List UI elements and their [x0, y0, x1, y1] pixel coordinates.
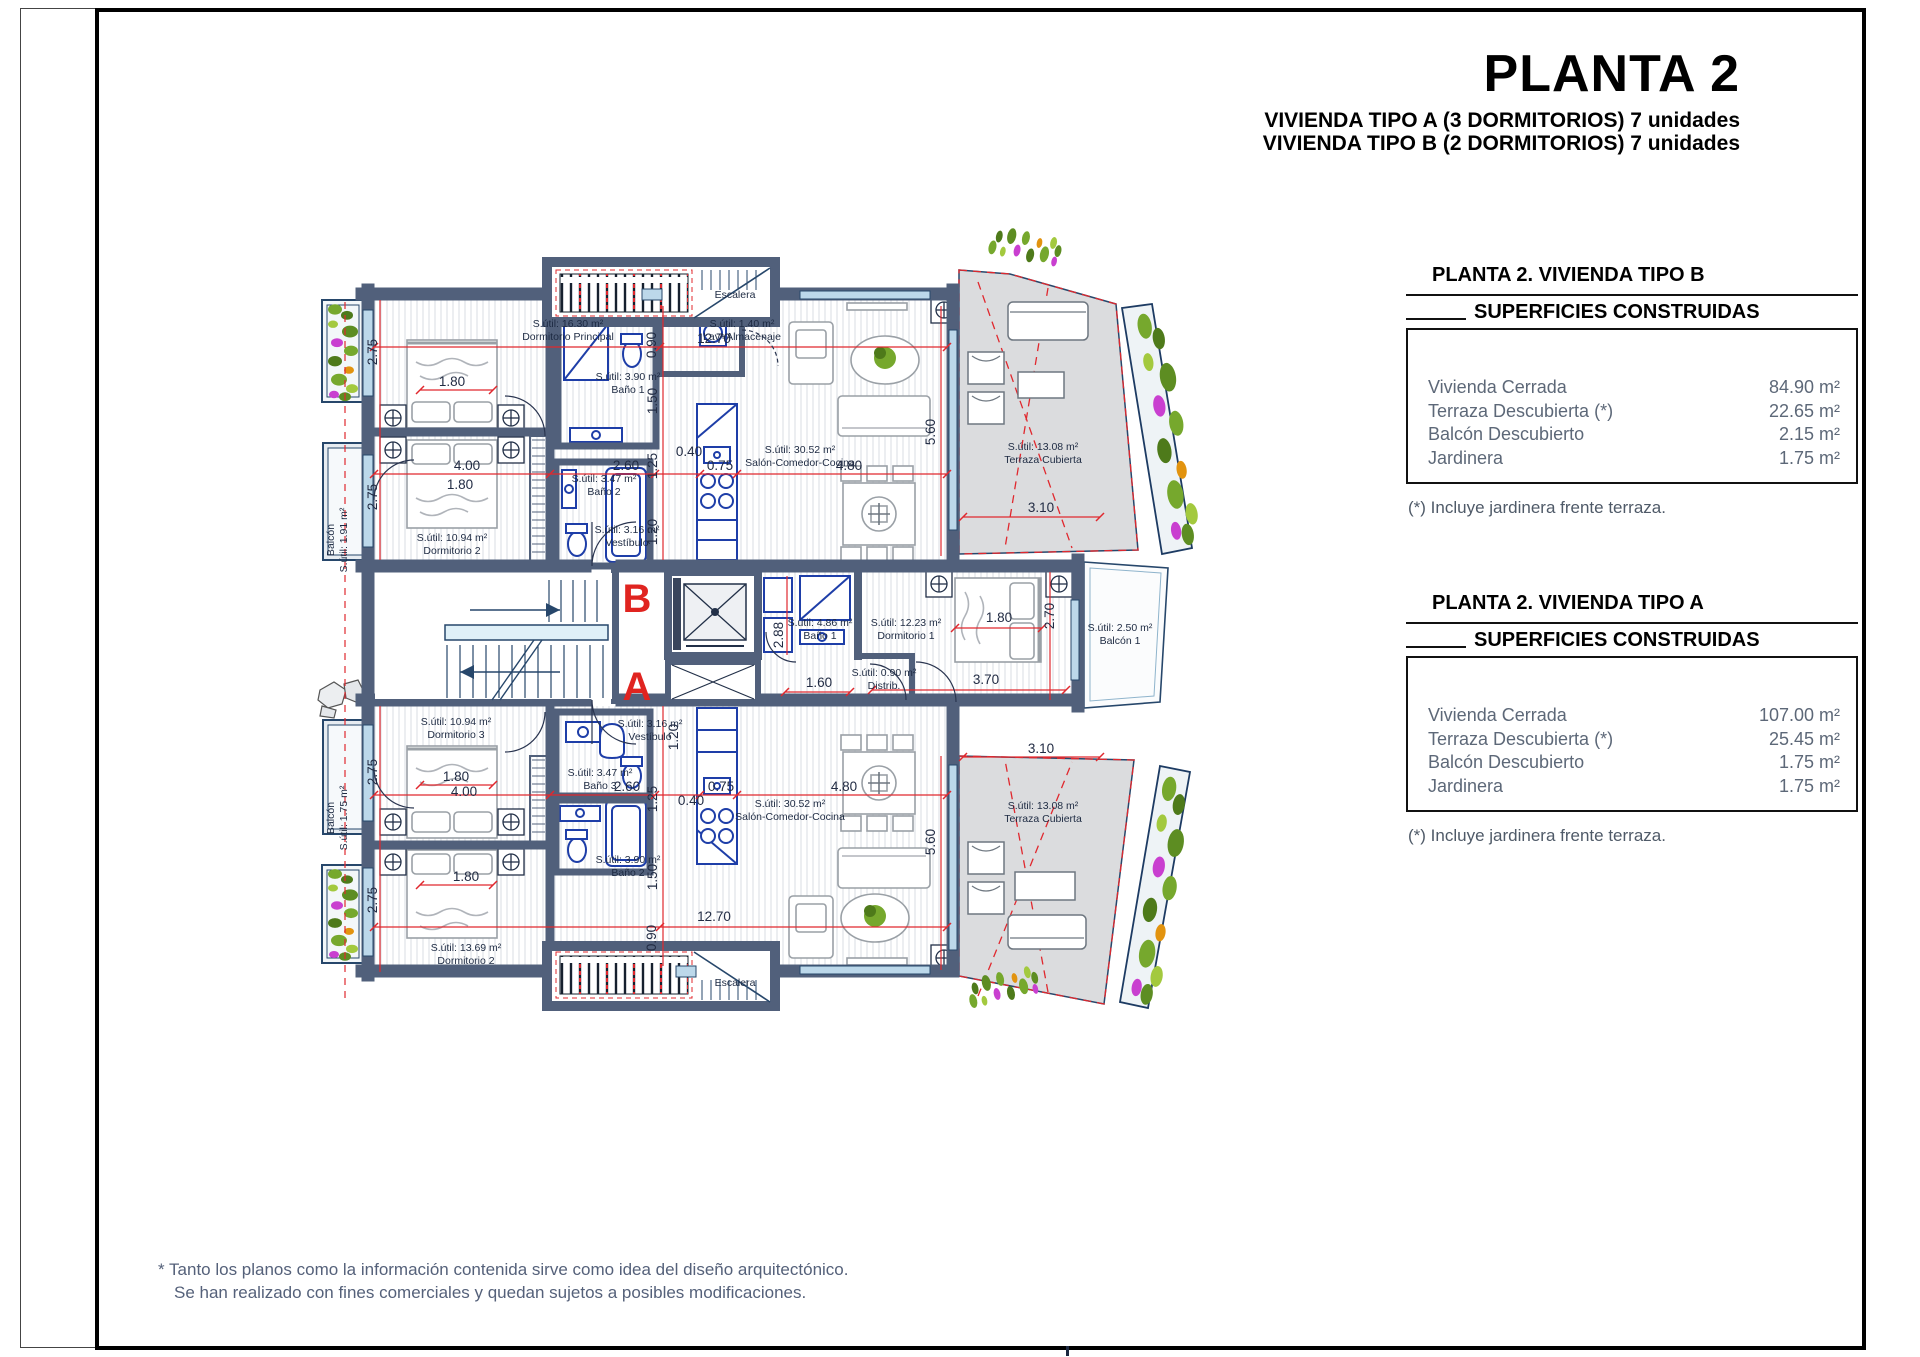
dimension-label: 1.25 — [645, 453, 660, 479]
room-label: Baño 1 — [803, 630, 836, 642]
dimension-label: 1.80 — [453, 869, 479, 884]
room-label: Terraza Cubierta — [1004, 813, 1082, 825]
dimension-label: 1.25 — [645, 786, 660, 812]
dimension-label: 0.90 — [644, 925, 659, 951]
dimension-label: 1.50 — [645, 864, 660, 890]
dimension-label: 0.90 — [644, 332, 659, 358]
dimension-label: 2.75 — [365, 339, 380, 365]
room-label: S.útil: 30.52 m² — [755, 798, 826, 810]
service-shaft — [668, 662, 758, 702]
unit-letter-b: B — [623, 577, 652, 621]
room-label: Salón-Comedor-Cocina — [735, 811, 845, 823]
plant — [874, 347, 886, 359]
room-label: Balcón 1 — [1100, 635, 1141, 647]
dimension-label: 1.80 — [439, 374, 465, 389]
room-label: S.útil: 12.23 m² — [871, 617, 942, 629]
room-label: Vestíbulo — [605, 537, 648, 549]
room-label: Escalera — [715, 977, 756, 989]
dimension-label: 0.75 — [707, 458, 733, 473]
dimension-label: 2.75 — [365, 484, 380, 510]
planter-upper-left — [322, 300, 364, 402]
plant — [864, 905, 876, 917]
room-label: S.útil: 3.47 m² — [572, 473, 637, 485]
dimension-label: 1.80 — [443, 769, 469, 784]
dimension-label: 4.80 — [836, 458, 862, 473]
stairwell — [375, 573, 612, 700]
planter-lower-left — [322, 865, 364, 963]
dimension-label: 1.80 — [447, 477, 473, 492]
room-label: S.útil: 13.08 m² — [1008, 441, 1079, 453]
dimension-label: 5.60 — [923, 829, 938, 855]
dimension-label: 2.60 — [613, 458, 639, 473]
dimension-label: 4.80 — [831, 779, 857, 794]
room-label: Dormitorio Principal — [522, 331, 614, 343]
dimension-label: 1.80 — [986, 610, 1012, 625]
dimension-label: 2.60 — [614, 779, 640, 794]
room-label: Dormitorio 1 — [877, 630, 934, 642]
room-label: S.útil: 3.47 m² — [568, 767, 633, 779]
dimension-label: 12.70 — [697, 909, 731, 924]
room-label: Baño 2 — [611, 867, 644, 879]
room-label: Dormitorio 3 — [427, 729, 484, 741]
room-label: S.útil: 1.40 m² — [710, 318, 775, 330]
room-label: Terraza Cubierta — [1004, 454, 1082, 466]
terrace-corner-plants-b — [987, 224, 1064, 268]
room-label: S.útil: 10.94 m² — [421, 716, 492, 728]
dimension-label: 0.75 — [708, 779, 734, 794]
dimension-label: 1.20 — [645, 519, 660, 545]
stair-block-bottom — [547, 946, 775, 1006]
room-label: Balcón — [325, 524, 337, 556]
room-label: S.útil: 4.86 m² — [788, 617, 853, 629]
room-label: S.útil: 30.52 m² — [765, 444, 836, 456]
room-label: S.útil: 3.90 m² — [596, 371, 661, 383]
dimension-label: 1.20 — [666, 724, 681, 750]
dimension-label: 3.10 — [1028, 500, 1054, 515]
room-label: Dormitorio 2 — [423, 545, 480, 557]
dimension-label: 0.40 — [676, 444, 702, 459]
dimension-label: 2.75 — [365, 887, 380, 913]
unit-letter-a: A — [623, 665, 652, 709]
dimension-label: 3.70 — [973, 672, 999, 687]
room-label: S.útil: 2.50 m² — [1088, 622, 1153, 634]
room-label: Escalera — [715, 289, 756, 301]
dimension-label: 1.50 — [645, 388, 660, 414]
dimension-label: 2.88 — [771, 622, 786, 648]
room-label: S.útil: 16.30 m² — [533, 318, 604, 330]
dimension-label: 4.00 — [454, 458, 480, 473]
floor-plan: S.útil: 16.30 m²Dormitorio PrincipalS.út… — [0, 0, 1920, 1357]
terrace-a — [959, 756, 1134, 1004]
room-label: Baño 2 — [587, 486, 620, 498]
dimension-label: 1.60 — [806, 675, 832, 690]
room-label: Distrib. — [868, 680, 901, 692]
room-label: Balcón — [325, 802, 337, 834]
room-label: S.útil: 10.94 m² — [417, 532, 488, 544]
room-label: S.útil: 13.69 m² — [431, 942, 502, 954]
room-label: S.útil: 1.75 m² — [338, 785, 350, 850]
dimension-label: 12.70 — [697, 331, 731, 346]
dimension-label: 2.70 — [1042, 603, 1057, 629]
room-label: Baño 3 — [583, 780, 616, 792]
dimension-label: 4.00 — [451, 784, 477, 799]
dimension-label: 5.60 — [923, 419, 938, 445]
room-label: S.útil: 13.08 m² — [1008, 800, 1079, 812]
room-label: Baño 1 — [611, 384, 644, 396]
room-label: S.útil: 1.91 m² — [338, 507, 350, 572]
room-label: S.útil: 0.90 m² — [852, 667, 917, 679]
room-label: Dormitorio 2 — [437, 955, 494, 967]
plan-sheet: PLANTA 2 VIVIENDA TIPO A (3 DORMITORIOS)… — [0, 0, 1920, 1357]
dimension-label: 0.40 — [678, 793, 704, 808]
dimension-label: 2.75 — [365, 759, 380, 785]
dimension-label: 3.10 — [1028, 741, 1054, 756]
elevator-shaft — [668, 572, 758, 656]
planter-strip-right-a — [1120, 766, 1194, 1008]
